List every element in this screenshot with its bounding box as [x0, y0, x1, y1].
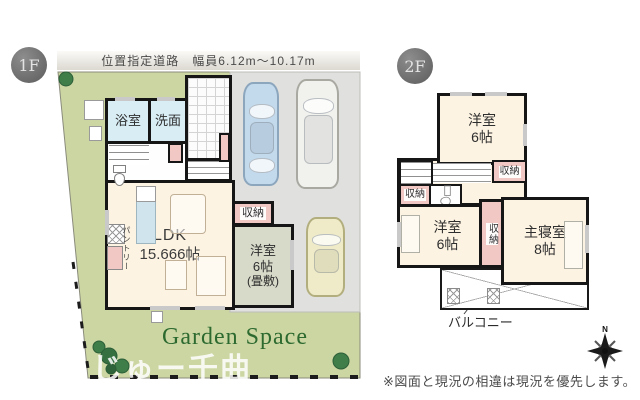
storage-2f-left: 収納	[399, 184, 431, 206]
window-ldk-2	[195, 306, 225, 310]
toilet-1f-icon	[113, 165, 126, 186]
road-designation-label: 位置指定道路 幅員6.12m〜10.17m	[57, 51, 360, 70]
tatami-name-label: 洋室	[250, 243, 276, 259]
toilet-2f-icon	[440, 185, 450, 205]
window-ldk-1	[150, 306, 180, 310]
stairs-2f	[399, 160, 433, 186]
storage-2f-left-label: 収納	[404, 189, 426, 201]
west-bedroom-size: 6帖	[421, 236, 459, 253]
floor-plan-page: N 1F 2F 位置指定道路 幅員6.12m〜10.17m 浴室 洗面	[0, 0, 640, 400]
compass-icon: N	[587, 325, 623, 369]
window-kitchen	[105, 210, 109, 235]
window-north-1	[450, 92, 472, 96]
bed-west-icon	[401, 215, 420, 253]
window-master	[585, 225, 589, 253]
dining-table	[170, 194, 206, 234]
room-washroom: 洗面	[148, 98, 188, 144]
floor2-badge-label: 2F	[404, 57, 425, 76]
floor2-badge: 2F	[397, 48, 433, 84]
tatami-note-label: (畳敷)	[247, 274, 279, 288]
floor1-badge-label: 1F	[18, 56, 39, 75]
north-bedroom-label: 洋室	[468, 112, 496, 129]
yellow-car-roof	[314, 249, 340, 272]
tatami-size-label: 6帖	[253, 259, 273, 275]
balcony-label: バルコニー	[448, 312, 513, 331]
blue-car-rear-window	[249, 158, 275, 173]
storage-2f-center-label: 収納	[486, 223, 498, 245]
storage-2f-hall-label: 収納	[499, 166, 521, 178]
blue-car-roof	[250, 122, 274, 154]
shoe-closet	[219, 133, 230, 162]
bed-master-icon	[564, 221, 583, 269]
sofa	[196, 256, 226, 296]
outdoor-unit	[89, 126, 102, 141]
living-table	[165, 260, 187, 290]
yellow-car-icon	[306, 217, 345, 297]
white-van-roof	[304, 115, 333, 164]
yellow-car-windshield	[312, 234, 341, 246]
closet-hall-1f	[168, 143, 183, 163]
white-van-icon	[296, 79, 339, 189]
window-tatami	[290, 240, 294, 270]
blue-car-windshield	[249, 104, 275, 119]
master-bedroom-size: 8帖	[534, 241, 556, 258]
washroom-label: 洗面	[155, 113, 181, 129]
north-bedroom-size: 6帖	[471, 129, 493, 146]
window-washroom	[157, 97, 175, 101]
storage-2f-hall: 収納	[492, 160, 527, 183]
window-north-side	[523, 124, 527, 146]
garden-space-label: Garden Space	[150, 324, 320, 351]
white-van-windshield	[303, 98, 335, 114]
room-north-bedroom: 洋室 6帖	[437, 93, 527, 165]
storage-1f: 収納	[232, 201, 274, 226]
stairwell-void	[433, 163, 491, 183]
master-bedroom-label: 主寝室	[524, 224, 566, 241]
toilet-2f	[429, 184, 462, 206]
room-bath: 浴室	[105, 98, 151, 144]
window-west	[397, 222, 401, 247]
floor1-badge: 1F	[11, 47, 47, 83]
balcony-post-2	[487, 288, 500, 304]
blue-car-icon	[243, 82, 279, 186]
meter-box	[151, 311, 163, 323]
room-tatami: 洋室 6帖 (畳敷)	[232, 224, 294, 308]
window-north-2	[485, 92, 507, 96]
compass-north-label: N	[602, 325, 608, 334]
balcony-post-1	[447, 288, 460, 304]
garden-shed	[84, 100, 104, 120]
kitchen-stove	[136, 186, 156, 202]
disclaimer-text: ※図面と現況の相違は現況を優先します。	[383, 371, 636, 390]
west-bedroom-label: 洋室	[418, 219, 462, 236]
storage-1f-label: 収納	[240, 207, 266, 220]
window-bath	[115, 97, 135, 101]
bath-label: 浴室	[115, 113, 141, 129]
pantry-label: パントリー	[121, 226, 132, 290]
road-label-text: 位置指定道路 幅員6.12m〜10.17m	[101, 52, 315, 69]
stairs-1f	[109, 145, 149, 165]
